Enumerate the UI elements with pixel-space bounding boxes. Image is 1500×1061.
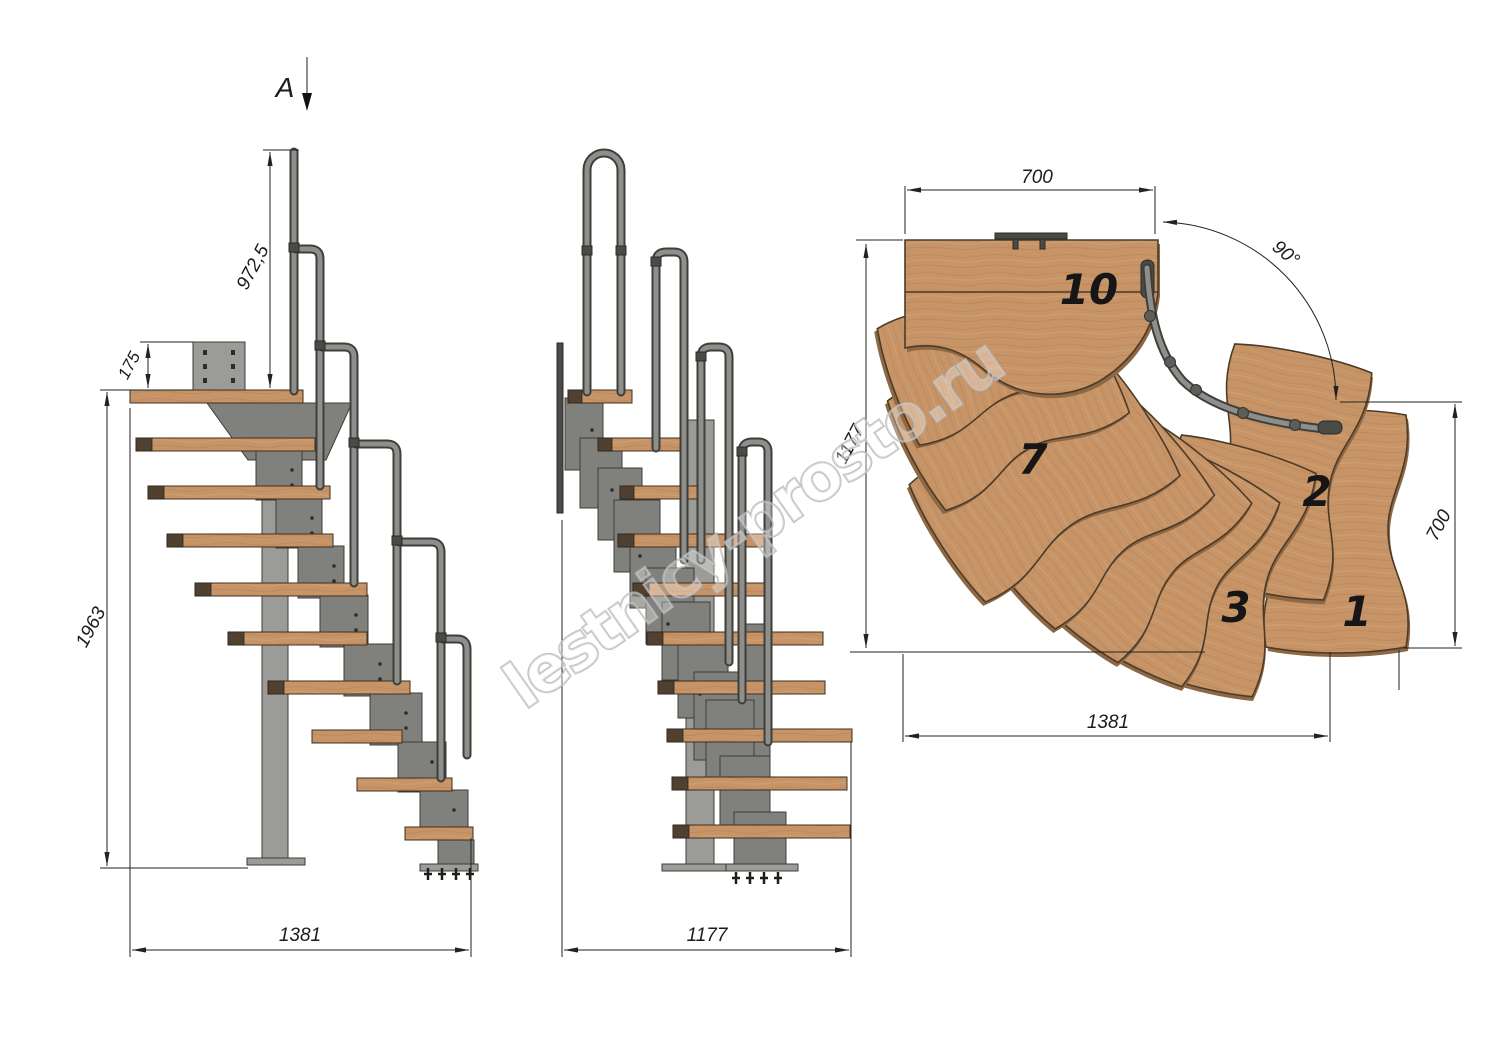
dim-landing-width: 700 xyxy=(905,167,1155,234)
tread-number-7: 7 xyxy=(1018,435,1048,484)
tread-number-10: 10 xyxy=(1060,265,1118,314)
dim-label-turn-angle: 90° xyxy=(1268,237,1304,272)
dim-label-total-length: 1381 xyxy=(1087,712,1129,733)
dim-total-rise: 1963 xyxy=(72,390,248,868)
dim-label-total-run: 1381 xyxy=(279,925,321,946)
dim-label-landing-width: 700 xyxy=(1021,167,1053,188)
section-marker: A xyxy=(274,57,312,111)
tread-number-3: 3 xyxy=(1221,583,1250,632)
side-view: A 972,5 175 1963 1381 xyxy=(72,57,478,957)
plan-view: 10 7 2 3 1 700 90° 1177 700 xyxy=(831,167,1462,742)
section-label: A xyxy=(274,72,295,103)
dim-label-exit-width: 700 xyxy=(1422,506,1456,544)
technical-drawing: A 972,5 175 1963 1381 xyxy=(0,0,1500,1061)
dim-label-plate-offset: 175 xyxy=(114,348,144,382)
dim-plate-offset: 175 xyxy=(114,342,193,388)
wall-plate xyxy=(193,342,245,390)
anchor-bolts xyxy=(732,872,782,884)
tread-number-2: 2 xyxy=(1302,467,1331,516)
dim-label-total-width: 1177 xyxy=(687,925,729,946)
dim-label-handrail-height: 972,5 xyxy=(233,241,274,293)
staircase-drawing-page: A 972,5 175 1963 1381 xyxy=(0,0,1500,1061)
tread-number-1: 1 xyxy=(1342,587,1371,636)
wall-bracket xyxy=(557,343,563,513)
dim-label-total-rise: 1963 xyxy=(72,603,111,651)
